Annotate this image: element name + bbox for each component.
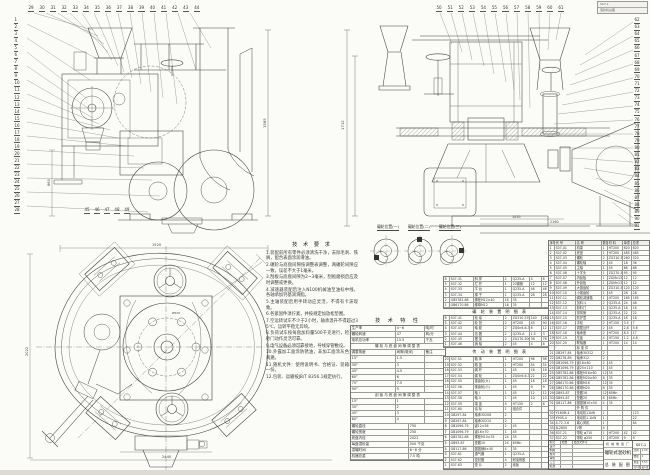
part-callout: 28: [14, 208, 20, 214]
part-callout: 40: [150, 6, 156, 12]
part-callout: 34: [83, 6, 89, 12]
part-callout: 87: [634, 196, 640, 202]
parts-row: 1GB6170-86螺母M121635: [444, 303, 556, 308]
part-callout: 45: [84, 208, 90, 214]
note-item: 8.负荷试车按每盘加料量500千克进行，检查出砂门动作灵活可靠。: [266, 331, 358, 342]
part-callout: 44: [194, 6, 200, 12]
spec-gap2-rows: 15°130°245°360°4: [351, 399, 445, 423]
part-callout: 21: [14, 159, 20, 165]
title-block: 标记处数更改文件号设计制图校对审核工艺批准 机 械 制 造 厂 碾轮式混砂机 总…: [548, 440, 650, 470]
notes-title: 技 术 要 求: [266, 241, 358, 248]
part-callout: 79: [634, 139, 640, 145]
title-block-meta: 比例1:10数量1重量7.5 t共1张第1张: [633, 449, 649, 472]
part-callout: 86: [634, 189, 640, 195]
note-item: 6.各紧固件须拧紧，并按规定加放松垫圈。: [266, 312, 358, 318]
part-callout: 66: [634, 46, 640, 52]
dim-plan-top: 1520: [152, 243, 162, 247]
part-callout: 17: [14, 131, 20, 137]
note-item: 5.主轴装配后用手转动应灵活，不得有卡滞现象。: [266, 300, 358, 311]
part-callout: 84: [634, 174, 640, 180]
part-callout: 24: [14, 180, 20, 186]
part-callout: 15: [14, 117, 20, 123]
drawing-title: 碾轮式混砂机: [604, 448, 632, 460]
note-item: 12.包装、运输按JB/T 8356.1规定执行。: [266, 375, 358, 381]
subtable-drive: 20S07-51箱 体1HT200969619S07-52箱 盖1HT20054…: [443, 356, 557, 470]
part-callout: 78: [634, 132, 640, 138]
title-block-signatures: 标记处数更改文件号设计制图校对审核工艺批准: [549, 441, 604, 469]
subtable-wheel-title: 碾 轮 装 置 明 细 表: [443, 309, 557, 315]
part-callout: 69: [634, 68, 640, 74]
part-callout: 54: [480, 6, 486, 12]
detail-view-label: 碾轮位置(二): [408, 224, 430, 231]
part-callout: 39: [138, 6, 144, 12]
side-view-callouts-left: 1234567891011121314151617181920212223242…: [14, 18, 20, 214]
part-callout: 73: [634, 96, 640, 102]
part-callout: 43: [183, 6, 189, 12]
dim-plan-left: 2022: [25, 347, 29, 356]
bom-body: 1S07-01机架1HT2006206202S07-02底盘1HT2004854…: [549, 246, 649, 441]
part-callout: 4: [14, 39, 18, 45]
part-callout: 80: [634, 146, 640, 152]
part-callout: 56: [502, 6, 508, 12]
note-item: 4.减速器装配后注入N100机械油至油标中线，各轴承加钙基润滑脂。: [266, 288, 358, 299]
detail-view-labels: 碾轮位置(一)碾轮位置(二)碾轮位置(三): [377, 224, 461, 231]
part-callout: 91: [634, 224, 640, 230]
part-callout: 31: [50, 6, 56, 12]
subtable-drive-title: 传 动 装 置 明 细 表: [443, 349, 557, 355]
part-callout: 25: [14, 187, 20, 193]
dim-plan-flange: Ø520: [172, 310, 180, 315]
part-callout: 37: [116, 6, 122, 12]
part-callout: 51: [447, 6, 453, 12]
spec-top-rows: 生产率4~6吨/时碾轮转速47转/分电机总功率15.5千瓦: [351, 326, 445, 344]
title-block-factory: 机 械 制 造 厂: [604, 441, 632, 448]
spec-row: 机器总重7.5 吨: [351, 454, 445, 460]
title-block-right: S07-1 比例1:10数量1重量7.5 t共1张第1张: [633, 441, 649, 469]
part-callout: 75: [634, 110, 640, 116]
part-callout: 53: [469, 6, 475, 12]
part-callout: 61: [558, 6, 564, 12]
part-callout: 42: [172, 6, 178, 12]
detail-view-label: 碾轮位置(三): [439, 224, 461, 231]
part-callout: 70: [634, 75, 640, 81]
part-callout: 30: [39, 6, 45, 12]
part-callout: 7: [14, 60, 18, 66]
part-callout: 72: [634, 89, 640, 95]
subtable-wheel: 6S07-41轮 缘2ZG310-5701402805S07-42轮 毂2HT2…: [443, 315, 557, 348]
side-view-callouts-top: 29303132333435363738394041424344: [28, 6, 200, 12]
part-callout: 57: [514, 6, 520, 12]
note-item: 11.随机文件：使用说明书、合格证、装箱单各一份。: [266, 363, 358, 374]
dim-front-width-2: 2160: [550, 220, 559, 224]
part-callout: 60: [547, 6, 553, 12]
part-callout: 32: [61, 6, 67, 12]
drawing-sheet: 1585 660: [0, 0, 650, 475]
part-callout: 20: [14, 152, 20, 158]
drawing-subtitle: 总 装 配 图: [604, 460, 632, 469]
detail-view-label: 碾轮位置(一): [377, 224, 399, 231]
spec-bottom-rows: 碾轮直径750碾轮宽度250底盘内径2022每盘混砂量500 千克混碾时间6~8…: [351, 424, 445, 461]
part-callout: 35: [94, 6, 100, 12]
part-callout: 82: [634, 160, 640, 166]
part-callout: 58: [525, 6, 531, 12]
side-view: 1585 660: [27, 13, 271, 233]
part-callout: 71: [634, 82, 640, 88]
dim-plan-bottom: 2440: [162, 455, 172, 459]
part-callout: 74: [634, 103, 640, 109]
spec-table-title: 技 术 特 性: [350, 317, 446, 324]
spec-gap1-rows: 15°1.530°345°4.560°675°7.590°9: [351, 356, 445, 393]
dim-side-width: 660: [47, 178, 51, 186]
part-callout: 18: [14, 138, 20, 144]
part-callout: 14: [14, 110, 20, 116]
part-callout: 11: [14, 88, 20, 94]
dim-side-height: 1585: [262, 118, 267, 128]
part-callout: 36: [105, 6, 111, 12]
part-callout: 47: [104, 208, 110, 214]
part-callout: 12: [14, 96, 20, 102]
notes-list: 1.装配前所有零件必须清洗干净，去除毛刺、铁屑，配合表面涂润滑油。2.碾轮与底盘…: [266, 251, 358, 381]
part-callout: 62: [634, 18, 640, 24]
part-callout: 3: [14, 32, 18, 38]
part-callout: 2: [14, 25, 18, 31]
part-callout: 81: [634, 153, 640, 159]
front-view-callouts-right: 6263646566676869707172737475767778798081…: [634, 18, 640, 230]
part-callout: 90: [634, 217, 640, 223]
part-callout: 76: [634, 118, 640, 124]
corner-stamp: S07-1 混砂机总图: [597, 1, 648, 14]
parts-row: 1S07-46销 轴24548: [444, 342, 556, 347]
bom-table: 序号代 号名 称数量材 料单重总重 1S07-01机架1HT2006206202…: [548, 240, 650, 442]
dim-front-width-1: 1035: [512, 215, 521, 219]
parts-row: 1S07-63垫 片2纸板: [444, 463, 556, 469]
part-callout: 23: [14, 173, 20, 179]
note-item: 10.外露加工面涂防锈油，非加工面涂灰色油漆两遍。: [266, 350, 358, 361]
part-callout: 5: [14, 46, 18, 52]
front-section-view: 1712 1035 2160: [340, 13, 650, 233]
front-view-callouts-top: 505152535455565758596061: [436, 6, 564, 12]
part-callout: 49: [124, 208, 130, 214]
side-view-callouts-bottom: 4546474849: [84, 208, 130, 214]
part-callout: 67: [634, 54, 640, 60]
stamp-title: 混砂机总图: [598, 7, 647, 13]
part-callout: 29: [28, 6, 34, 12]
part-callout: 63: [634, 25, 640, 31]
part-callout: 50: [436, 6, 442, 12]
part-callout: 19: [14, 145, 20, 151]
part-callout: 64: [634, 32, 640, 38]
part-callout: 85: [634, 182, 640, 188]
part-callout: 59: [536, 6, 542, 12]
note-item: 7.空运转试车不少于2小时，轴承温升不得超过35℃，运转平稳无异响。: [266, 319, 358, 330]
part-callout: 8: [14, 67, 18, 73]
part-callout: 88: [634, 203, 640, 209]
part-callout: 26: [14, 194, 20, 200]
part-callout: 41: [161, 6, 167, 12]
part-callout: 52: [458, 6, 464, 12]
part-callout: 65: [634, 39, 640, 45]
part-callout: 48: [114, 208, 120, 214]
part-callout: 46: [94, 208, 100, 214]
part-callout: 38: [127, 6, 133, 12]
part-callout: 6: [14, 53, 18, 59]
drawing-number: S07-1: [633, 441, 649, 449]
part-callout: 13: [14, 103, 20, 109]
part-callout: 89: [634, 210, 640, 216]
part-callout: 1: [14, 18, 18, 24]
note-item: 2.碾轮与底盘间隙按调整表调整，两碾轮间隙应一致，误差不大于1毫米。: [266, 263, 358, 274]
title-block-center: 机 械 制 造 厂 碾轮式混砂机 总 装 配 图: [604, 441, 633, 469]
part-callout: 16: [14, 124, 20, 130]
part-callout: 77: [634, 125, 640, 131]
note-item: 1.装配前所有零件必须清洗干净，去除毛刺、铁屑，配合表面涂润滑油。: [266, 251, 358, 262]
part-callout: 10: [14, 81, 20, 87]
signature-row: 批准: [549, 465, 603, 469]
part-callout: 33: [72, 6, 78, 12]
part-callout: 55: [491, 6, 497, 12]
part-callout: 27: [14, 201, 20, 207]
detail-view-cams: [370, 235, 468, 267]
dim-front-height: 1712: [340, 120, 345, 130]
sheet-bottom-edge: [0, 470, 650, 475]
subtable-platform: 6S07-31斜 撑2Q235-A485S07-32栏 杆120钢管12124S…: [443, 276, 557, 309]
part-callout: 68: [634, 61, 640, 67]
part-callout: 22: [14, 166, 20, 172]
note-item: 9.电气设备必须可靠接地，导线穿管敷设。: [266, 344, 358, 350]
spec-table: 生产率4~6吨/时碾轮转速47转/分电机总功率15.5千瓦 碾轮与底盘间隙调整表…: [350, 325, 446, 461]
technical-notes: 技 术 要 求 1.装配前所有零件必须清洗干净，去除毛刺、铁屑，配合表面涂润滑油…: [266, 241, 358, 382]
part-callout: 9: [14, 74, 18, 80]
note-item: 3.刮板与底盘间隙为2~3毫米，刮板磨损后应及时调整或更换。: [266, 275, 358, 286]
part-callout: 83: [634, 167, 640, 173]
